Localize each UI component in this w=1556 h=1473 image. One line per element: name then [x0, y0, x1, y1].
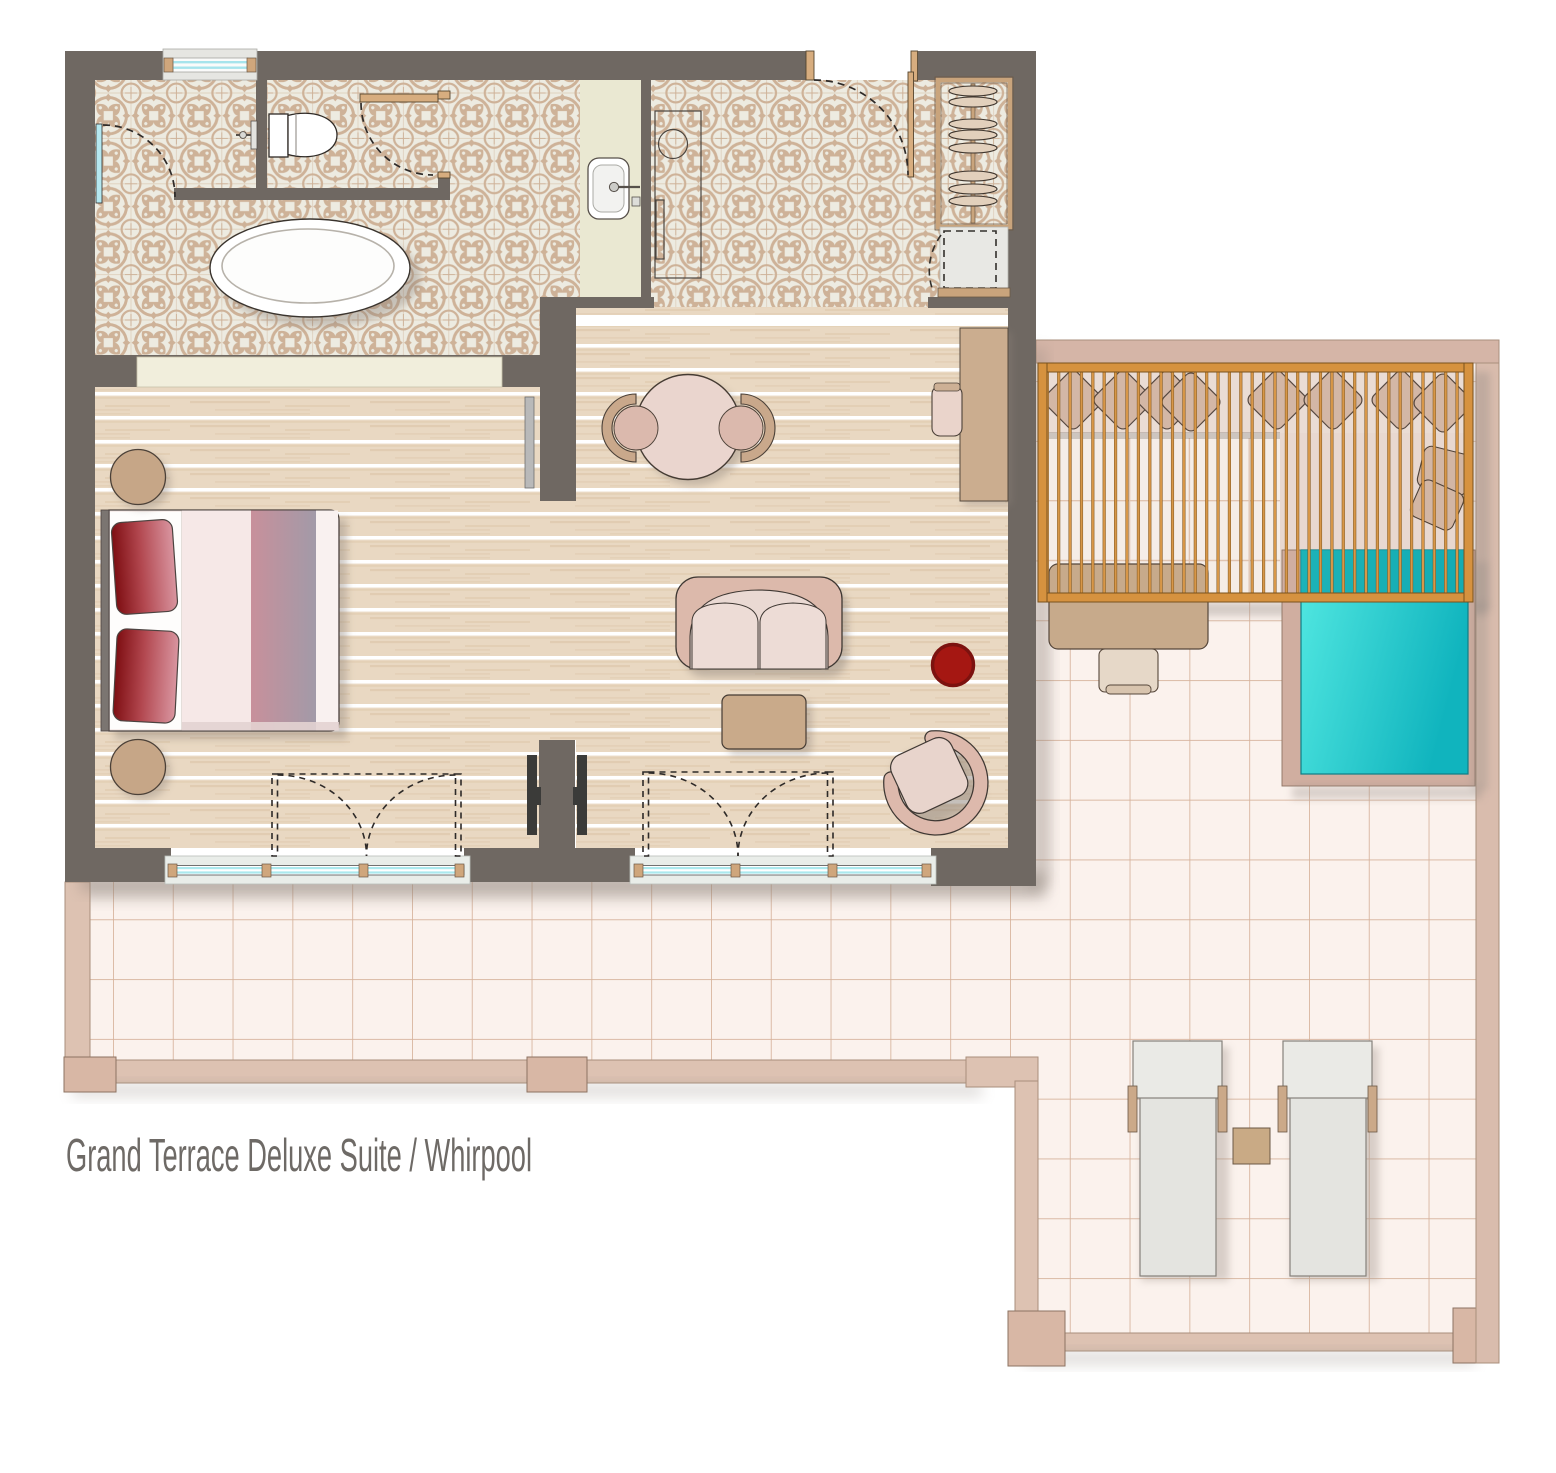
svg-text:Grand Terrace Deluxe Suite / W: Grand Terrace Deluxe Suite / Whirpool — [66, 1129, 532, 1181]
